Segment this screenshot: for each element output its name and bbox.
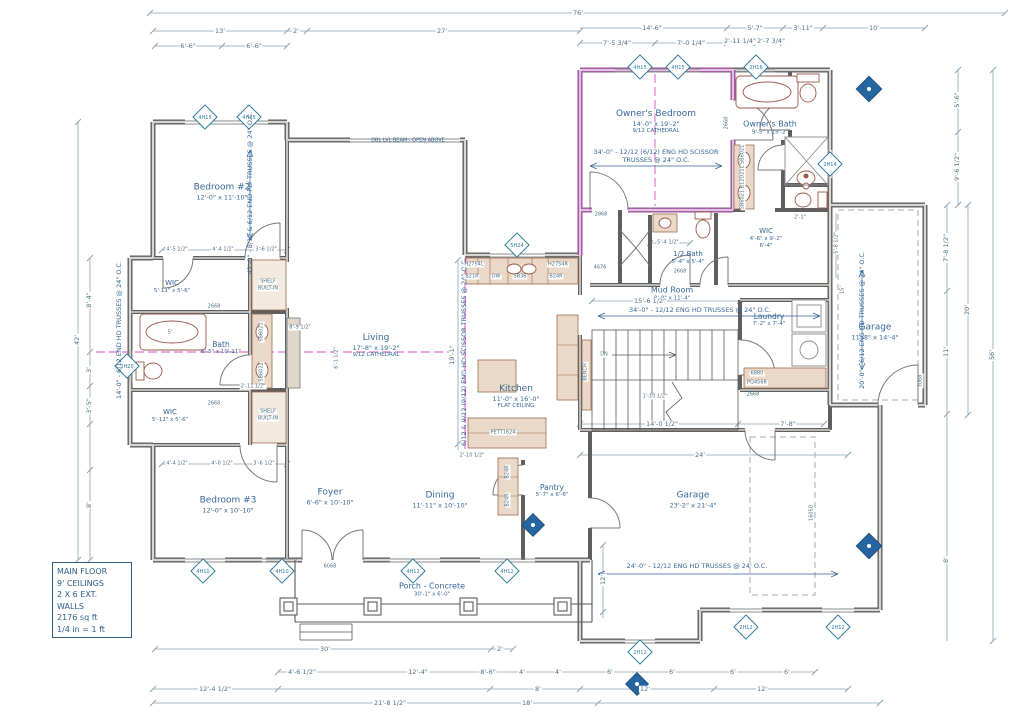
dim-label: 5'-7": [746, 25, 763, 32]
window-marker-label: 4H15: [671, 65, 684, 71]
door-label: 6068: [323, 565, 338, 570]
room-bedroom2: Bedroom #212'-0" x 11'-10": [194, 182, 251, 201]
door-label: 2668: [673, 270, 688, 275]
dim-label: 2'-11 1/4": [723, 38, 757, 45]
room-owners-bath: Owner's Bath9'-5" x 19'-2": [743, 120, 797, 137]
room-garage-main: Garage23'-2" x 21'-4": [669, 490, 716, 509]
door-label: 16050: [810, 504, 815, 522]
dim-label: 7'-0 1/4": [676, 40, 706, 47]
dim-label: 6': [606, 669, 614, 676]
dim-label: 42': [74, 334, 81, 346]
dim-label: 7'-5 3/4": [602, 40, 632, 47]
builtin-label: BUILT-IN: [257, 287, 279, 292]
dim-label: 4': [518, 669, 526, 676]
dim-label: 19'-1": [449, 344, 456, 366]
dim-label: 5': [167, 331, 174, 336]
dim-label: 4'-6 1/2": [287, 669, 317, 676]
room-foyer: Foyer6'-6" x 10'-10": [306, 487, 353, 506]
window-marker-label: 2H12: [633, 650, 646, 656]
stairs: [592, 330, 738, 430]
dim-label: 6'-1 1/2": [335, 346, 340, 369]
door-label: 2668: [746, 393, 761, 398]
dim-label: 2': [292, 28, 300, 35]
dim-label: 6': [729, 669, 737, 676]
cabinet-label: DW: [491, 275, 502, 280]
dim-label: 2'-7 3/4": [756, 38, 786, 45]
cabinet-label: B21R: [464, 275, 479, 280]
island-label: PETT1624: [490, 431, 517, 436]
title-line: 1/4 in = 1 ft: [57, 624, 131, 636]
dim-label: 1'-10 1/2": [642, 395, 669, 400]
builtin-label: BUILT-IN: [257, 417, 279, 422]
cabinet-label: H2754R: [547, 263, 569, 268]
dim-label: 3'-6 1/2": [252, 462, 275, 467]
dim-label: 4'-4 1/2": [211, 248, 234, 253]
cabinet-label: B24R: [506, 464, 511, 479]
washer-dryer: [792, 300, 826, 366]
truss-note-owners-1: 34'-0" - 12/12 (6/12) ENG HD SCISSOR: [592, 149, 719, 156]
dim-label: 6': [783, 669, 791, 676]
dim-label: 8': [86, 501, 93, 509]
dim-label: 3': [86, 366, 93, 374]
stairs-dn-label: DN: [599, 353, 609, 358]
dim-label: 13': [214, 28, 226, 35]
room-wic-bottom: WIC5'-11" x 5'-6": [152, 408, 188, 424]
dim-label: 8': [534, 686, 542, 693]
dim-label: 8'-4": [86, 291, 93, 308]
room-porch: Porch - Concrete30'-1" x 6'-0": [399, 582, 465, 599]
builtin-label: SHELF: [259, 280, 277, 285]
dim-label: 8': [943, 556, 950, 564]
dim-label: 7'-8": [779, 421, 796, 428]
dim-label: 6': [668, 669, 676, 676]
dim-label: 4'-5 1/2": [165, 248, 188, 253]
dim-label: 3'-5": [86, 397, 93, 414]
truss-note-living: 6/12 & 9/12 (9/12) ENG HD SCISSOR TRUSSE…: [461, 257, 468, 447]
floor-plan-sheet: 4H15 4H15 4H15 4H15 2H16 2H14 5H24 2H20 …: [0, 0, 1012, 711]
window-marker-label: 2H16: [749, 65, 762, 71]
cabinet-label: H2754L: [463, 263, 484, 268]
room-bedroom3: Bedroom #312'-0" x 10'-10": [200, 495, 257, 514]
dim-label: 14'-0 1/2": [645, 421, 679, 428]
cabinet-label: 6880: [750, 372, 765, 377]
truss-note-left-bump: 14'-0" - 6/12 END HD TRUSSES @ 24" O.C.: [116, 260, 123, 400]
dim-label: 12'-4": [407, 669, 429, 676]
window-marker-label: 4H10: [196, 569, 209, 575]
porch: [280, 560, 592, 640]
dim-label: 9'-6 1/2": [954, 152, 961, 182]
dim-label: 14'-6": [641, 25, 663, 32]
dim-label: 11': [943, 346, 950, 358]
truss-note-owners-2: TRUSSES @ 24" O.C.: [621, 157, 690, 164]
dim-label: 21'-8 1/2": [373, 700, 407, 707]
window-marker-label: 4H12: [500, 569, 513, 575]
symbol-diamond: [522, 514, 545, 537]
dim-label: 12'-4 1/2": [198, 686, 232, 693]
window-marker-label: 4H12: [406, 569, 419, 575]
door-label: 2868: [594, 213, 609, 218]
truss-note-left-wing: 42'-0" - 8/12 & 6/12 END PLY TRUSSES @ 2…: [247, 111, 254, 275]
dim-label: 12': [600, 574, 607, 586]
room-dining: Dining11'-11" x 10'-10": [412, 490, 467, 509]
window-marker-label: 2H14: [823, 162, 836, 168]
dim-label: 2'-1": [793, 216, 807, 221]
truss-note-garage-single: 20'-0" - 6/12 ENG HD TRUSSES @ 24" O.C.: [859, 250, 866, 390]
cabinet-label: SB36: [513, 275, 528, 280]
dim-label: 5'-4 1/2": [656, 241, 679, 246]
room-bath: Bath6'-5" x 10'-11": [201, 340, 241, 356]
dim-label: 2': [496, 646, 504, 653]
dim-label: 12': [756, 686, 768, 693]
room-pantry: Pantry5'-7" x 6'-6": [536, 483, 569, 499]
window-marker-label: 4H15: [633, 65, 646, 71]
toilet-bowl: [144, 363, 162, 379]
door-label: 4676: [593, 266, 608, 271]
dim-label: 8'-6": [479, 669, 496, 676]
vanity-label: SB6021: [260, 321, 265, 342]
truss-note-mud: 34'-0" - 12/12 ENG HD TRUSSES @ 24" O.C.: [628, 307, 772, 314]
dim-label: 15': [841, 285, 846, 295]
room-half-bath: 1/2 Bath5'-4" x 5'-4": [672, 250, 705, 266]
window-marker-label: 2H12: [831, 625, 844, 631]
window-marker-label: 2H12: [739, 625, 752, 631]
window-marker-label: 5H24: [510, 243, 523, 249]
window-marker-label: 4H10: [275, 569, 288, 575]
dim-label: 5'-6": [954, 91, 961, 108]
dim-label: 30': [319, 646, 331, 653]
dim-label: 8'-9 1/2": [288, 326, 311, 331]
symbol-diamond: [856, 76, 881, 101]
dim-label: 76': [572, 10, 584, 17]
dim-label: 24': [694, 452, 706, 459]
dim-label: 10': [868, 25, 880, 32]
dim-label: 2'-11 1/2": [240, 385, 267, 390]
cabinet-label: B24R: [506, 492, 511, 507]
room-laundry: Laundry7'-2" x 7'-4": [753, 312, 786, 328]
room-owners-wic: WIC4'-6" x 9'-2"6'-4": [750, 227, 783, 250]
dim-label: 4'-4 1/2": [165, 462, 188, 467]
title-line: 9' CEILINGS: [57, 578, 131, 590]
dim-label: 7'-8 1/2": [943, 233, 950, 263]
door-label: 3068: [919, 374, 924, 389]
vanity-label: SB6021: [260, 361, 265, 382]
truss-note-garage-main: 24'-0" - 12/12 ENG HD TRUSSES @ 24' O.C.: [626, 563, 769, 570]
dim-label: 3'-6 1/2": [254, 248, 277, 253]
beam-note: DBL LVL BEAM - OPEN ABOVE: [370, 139, 446, 144]
dim-label: 3'-11": [792, 25, 814, 32]
room-wic-top: WIC5'-11" x 5'-6": [154, 279, 190, 295]
cabinet-label: B24R: [548, 275, 563, 280]
dim-label: 27': [436, 28, 448, 35]
title-line: 2176 sq ft: [57, 612, 131, 624]
dim-label: 56': [989, 349, 996, 361]
window-marker-label: 4H15: [198, 115, 211, 121]
dim-label: 4': [554, 669, 562, 676]
door-label: 2668: [725, 116, 730, 131]
door-label: 2668: [207, 305, 222, 310]
title-block: MAIN FLOOR 9' CEILINGS 2 X 6 EXT. WALLS …: [52, 562, 132, 638]
dim-label: 20': [964, 304, 971, 316]
dim-label: 6'-6": [179, 43, 196, 50]
dim-label: 15'-6 1/2": [633, 298, 667, 305]
door-label: 2668: [207, 402, 222, 407]
builtin-label: SHELF: [259, 410, 277, 415]
vanity-label: SB6021 B12D21L SB6021: [741, 144, 746, 211]
dim-label: 18': [521, 700, 533, 707]
dim-label: 5'-8 1/2": [835, 231, 840, 254]
title-line: 2 X 6 EXT.: [57, 589, 131, 601]
title-line: WALLS: [57, 601, 131, 613]
room-living: Living17'-8" x 19'-2"9/12 CATHEDRAL: [352, 333, 399, 359]
dim-label: 2'-10 1/2": [459, 454, 486, 459]
truss-arrows: [247, 150, 865, 577]
room-owners-bedroom: Owner's Bedroom14'-0" x 19'-2"9/12 CATHE…: [616, 109, 696, 135]
cabinet-label: PQ456R: [746, 381, 768, 386]
bench-label: BENCH: [584, 362, 589, 382]
dim-label: 12': [639, 686, 651, 693]
room-kitchen: Kitchen11'-0" x 16'-0"FLAT CEILING: [492, 384, 539, 410]
dim-label: 4'-0 1/2": [210, 462, 233, 467]
title-line: MAIN FLOOR: [57, 566, 131, 578]
dim-label: 6'-6": [245, 43, 262, 50]
